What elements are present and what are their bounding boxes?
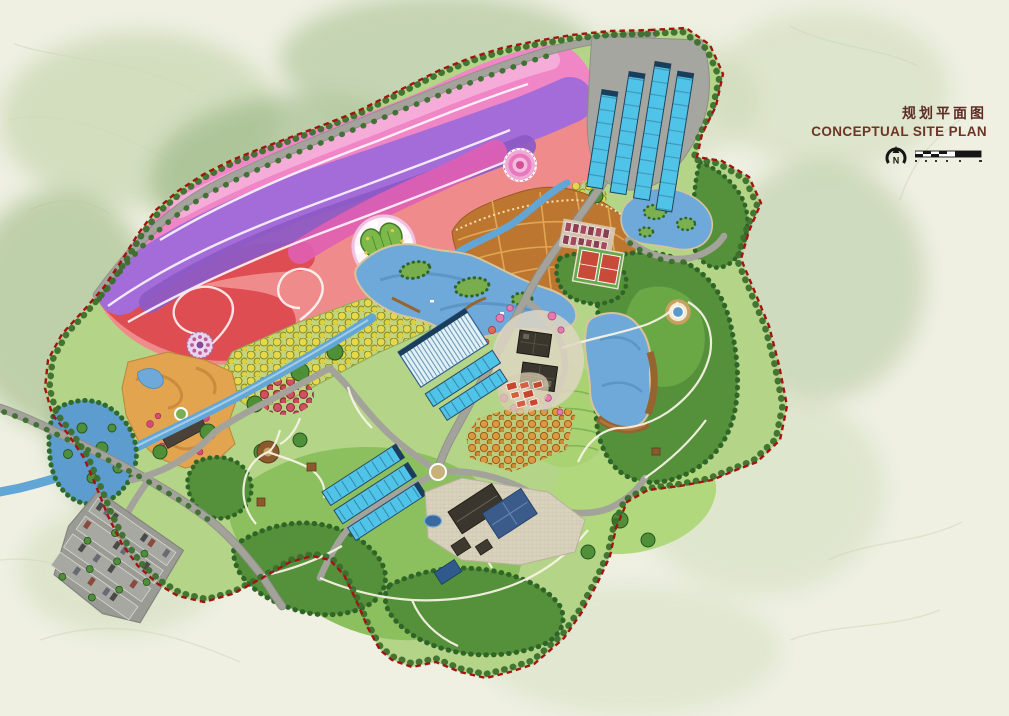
plan-title-english: CONCEPTUAL SITE PLAN <box>811 124 987 139</box>
sports-courts <box>573 245 625 288</box>
mandala-garden-small <box>187 332 213 358</box>
title-block: 规划平面图 CONCEPTUAL SITE PLAN N <box>811 103 987 168</box>
scale-bar-icon <box>915 150 987 164</box>
main-building-1 <box>517 330 552 357</box>
plan-title-chinese: 规划平面图 <box>811 103 987 123</box>
east-lake <box>585 313 651 429</box>
flower-roundabout <box>430 464 446 480</box>
north-label: N <box>893 156 900 166</box>
farm-pond <box>425 515 442 527</box>
conceptual-site-plan-page: 规划平面图 CONCEPTUAL SITE PLAN N <box>0 0 1009 716</box>
spiral-plaza <box>504 149 536 181</box>
north-arrow-icon: N <box>884 146 908 168</box>
